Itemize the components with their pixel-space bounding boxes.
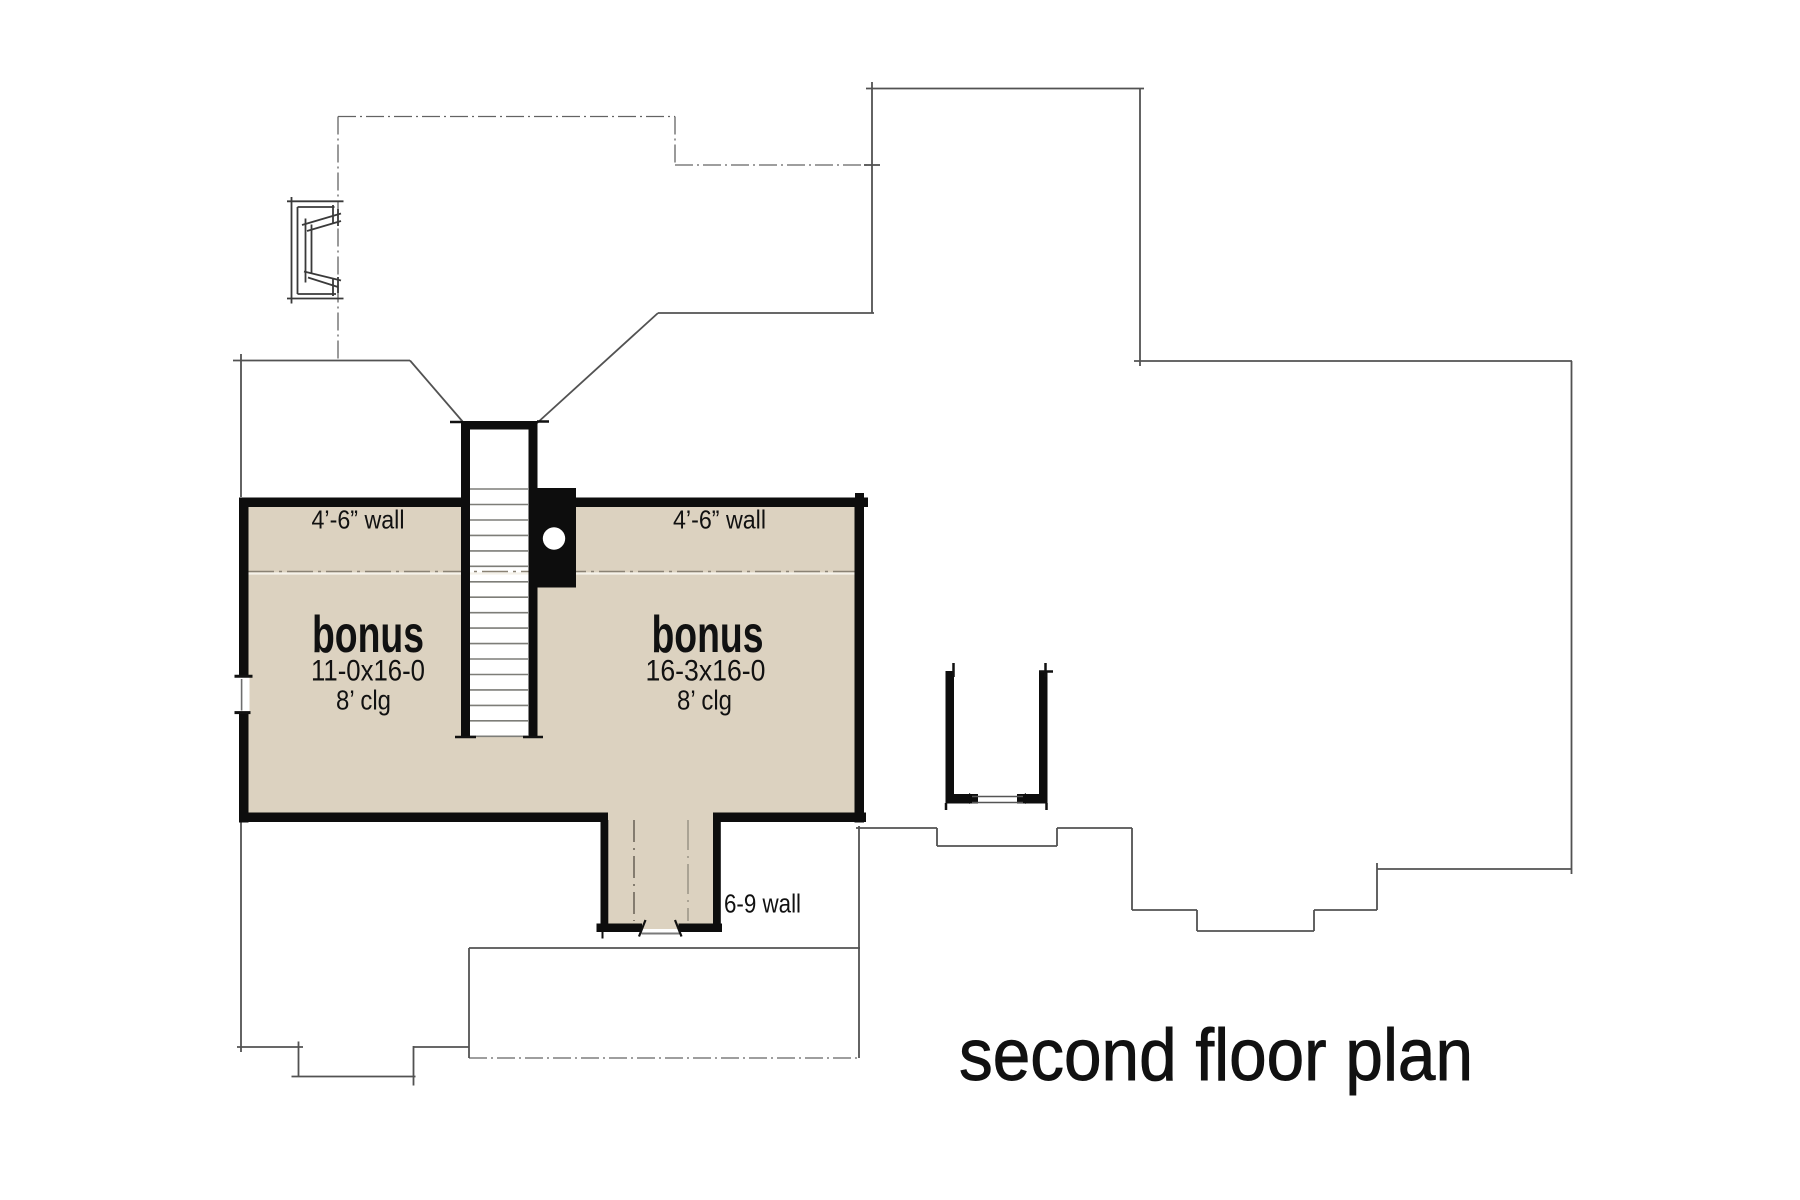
svg-text:8’ clg: 8’ clg [677,685,732,716]
svg-text:16-3x16-0: 16-3x16-0 [646,655,766,688]
svg-text:6-9 wall: 6-9 wall [724,891,801,919]
svg-text:4’-6” wall: 4’-6” wall [673,505,766,535]
svg-text:4’-6” wall: 4’-6” wall [312,505,405,535]
svg-text:second floor plan: second floor plan [959,1015,1473,1096]
svg-text:11-0x16-0: 11-0x16-0 [311,655,425,688]
svg-text:8’ clg: 8’ clg [336,685,391,716]
